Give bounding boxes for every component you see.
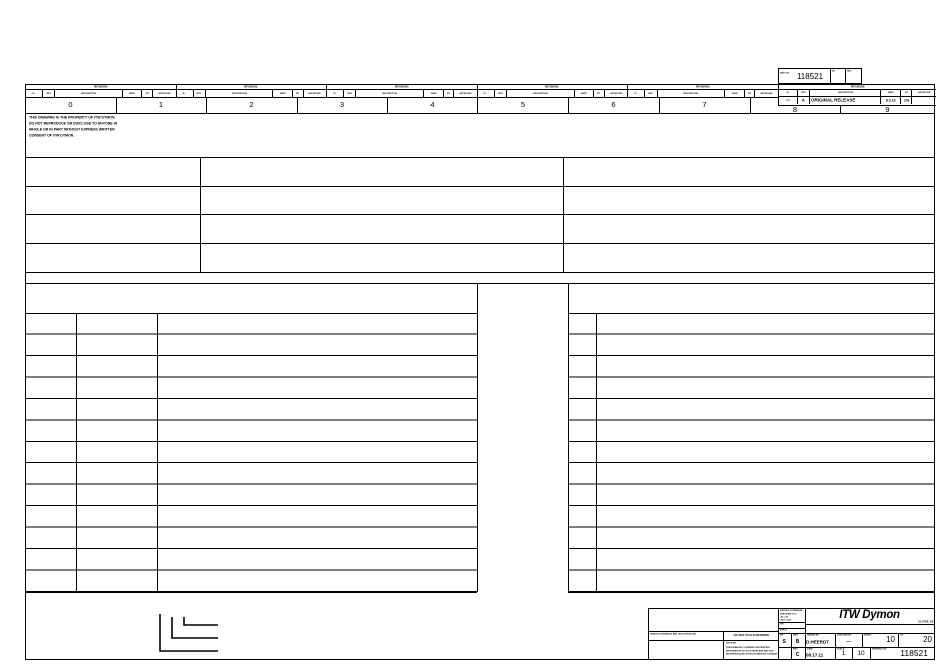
do-not-scale-note: DO NOT SCALE DRAWING — [724, 631, 778, 640]
line — [648, 608, 649, 660]
checked-by-value: — — [835, 635, 862, 646]
revision-table-header: ZL. REV DESCRIPTION DATE BY APPROVED — [25, 90, 176, 98]
zone-number: 1 — [151, 100, 171, 109]
cell-s-value: S — [778, 635, 791, 647]
date-value: 08.17.11 — [806, 650, 835, 659]
col-date: DATE — [430, 92, 436, 94]
scale-value-b: 10 — [852, 647, 870, 659]
col-date: DATE — [888, 91, 894, 93]
revision-table-header: ZL. REV DESCRIPTION DATE BY APPROVED — [477, 90, 628, 98]
sheet-value: 10 — [862, 633, 897, 646]
ref-note: REF ASM — [726, 642, 736, 644]
line — [568, 97, 569, 113]
col-by: BY — [146, 92, 149, 94]
col-by: BY — [597, 92, 600, 94]
line — [25, 186, 935, 187]
revision-table: REVISIONS ZL. REV DESCRIPTION DATE BY AP… — [326, 84, 477, 97]
revision-table-active: REVISIONS ZL. REV DESCRIPTION DATE BY AP… — [778, 84, 936, 106]
revision-table-header: ZL. REV DESCRIPTION DATE BY APPROVED — [627, 90, 778, 98]
col-by: BY — [296, 92, 299, 94]
entry-by: DS — [904, 99, 909, 103]
line — [477, 97, 478, 113]
line — [25, 592, 477, 593]
revision-table-header: ZL. REV DESCRIPTION DATE BY APPROVED — [779, 90, 936, 97]
drawing-sheet: DWG NO. 118521 SH REV REVISIONS ZL. REV … — [0, 0, 950, 667]
line — [750, 97, 751, 113]
line — [25, 243, 935, 244]
entry-rev: A — [802, 98, 805, 103]
revisions-caption: REVISIONS — [545, 85, 559, 88]
col-by: BY — [748, 92, 751, 94]
col-description: DESCRIPTION — [683, 92, 698, 94]
revisions-caption: REVISIONS — [696, 85, 710, 88]
col-approved: APPROVED — [918, 91, 930, 93]
zone-number: 6 — [604, 100, 624, 109]
line — [25, 272, 935, 273]
fine-print-line: BE REPRODUCED WITHOUT WRITTEN CONSENT — [726, 652, 778, 655]
col-description: DESCRIPTION — [382, 92, 397, 94]
col-approved: APPROVED — [610, 92, 622, 94]
revision-table-header: ZL. REV DESCRIPTION DATE BY APPROVED — [326, 90, 477, 98]
col-zone: ZL. — [786, 91, 789, 93]
sheet-mini-label: SH — [832, 70, 835, 72]
line — [206, 97, 207, 113]
revisions-caption: REVISIONS — [395, 85, 409, 88]
company-address: OLATHE, KS — [805, 618, 933, 624]
col-zone: ZL. — [634, 92, 637, 94]
serial-label: S/N — [780, 623, 784, 625]
zone-number: 0 — [61, 100, 81, 109]
col-approved: APPROVED — [158, 92, 170, 94]
col-rev: REV — [197, 92, 201, 94]
zone-number: 3 — [332, 100, 352, 109]
col-rev: REV — [46, 92, 50, 94]
line — [830, 68, 831, 84]
revisions-caption: REVISIONS — [244, 85, 258, 88]
entry-description: ORIGINAL RELEASE — [811, 98, 855, 103]
line — [659, 97, 660, 113]
line — [25, 214, 935, 215]
col-description: DESCRIPTION — [838, 91, 853, 93]
right-table-rows — [568, 313, 935, 592]
line — [840, 105, 841, 113]
line — [25, 283, 935, 284]
col-date: DATE — [581, 92, 587, 94]
col-zone: ZL. — [484, 92, 487, 94]
col-approved: APPROVED — [761, 92, 773, 94]
col-by: BY — [905, 91, 908, 93]
dwg-number-label: DWG NO. — [780, 72, 790, 74]
proprietary-note: THIS DRAWING IS THE PROPERTY OF ITW DYMO… — [29, 115, 205, 163]
line — [157, 313, 158, 592]
line — [297, 97, 298, 113]
cell-b-value: B — [791, 635, 805, 647]
col-approved: APPROVED — [309, 92, 321, 94]
col-date: DATE — [280, 92, 286, 94]
col-zone: ZL. — [32, 92, 35, 94]
note-line: CONSENT OF ITW DYMON. — [29, 133, 117, 139]
col-by: BY — [447, 92, 450, 94]
zone-number: 7 — [695, 100, 715, 109]
line — [648, 640, 778, 641]
revision-strip: REVISIONS ZL. REV DESCRIPTION DATE BY AP… — [25, 84, 778, 98]
col-rev: REV — [649, 92, 653, 94]
revisions-caption: REVISIONS — [851, 85, 865, 88]
zone-number: 8 — [785, 105, 805, 114]
zone-number: 2 — [242, 100, 262, 109]
line — [477, 283, 478, 592]
line — [116, 97, 117, 113]
line — [25, 157, 935, 158]
rev-mini-label: REV — [847, 70, 851, 72]
col-description: DESCRIPTION — [533, 92, 548, 94]
revision-table: REVISIONS ZL. REV DESCRIPTION DATE BY AP… — [176, 84, 327, 97]
scale-value-a: 1 — [835, 647, 852, 659]
line — [76, 313, 77, 592]
col-zone: ZL. — [333, 92, 336, 94]
line — [326, 84, 327, 97]
tolerance-line: .XXX ±.005 — [780, 619, 803, 622]
col-rev: REV — [801, 91, 805, 93]
revision-table: REVISIONS ZL. REV DESCRIPTION DATE BY AP… — [477, 84, 628, 97]
zone-number: 5 — [513, 100, 533, 109]
corner-fold-marks — [150, 610, 225, 658]
zone-number: 4 — [423, 100, 443, 109]
cell-c-value: C — [791, 649, 805, 660]
of-value: 20 — [898, 633, 934, 646]
col-approved: APPROVED — [459, 92, 471, 94]
col-rev: REV — [498, 92, 502, 94]
uncontrolled-note: PRINTED DRAWINGS ARE UNCONTROLLED — [650, 633, 696, 635]
drawn-by-value: D.HEERDT — [806, 637, 835, 646]
entry-zone: **** — [786, 98, 791, 102]
revisions-caption: REVISIONS — [93, 85, 107, 88]
line — [568, 592, 935, 593]
revision-table-header: ZL. REV DESCRIPTION DATE BY APPROVED — [176, 90, 327, 98]
line — [805, 624, 935, 625]
line — [596, 313, 597, 592]
line — [845, 68, 846, 84]
revision-table: REVISIONS ZL. REV DESCRIPTION DATE BY AP… — [627, 84, 778, 97]
line — [627, 84, 628, 97]
entry-date: 8.3.13 — [886, 99, 896, 103]
col-zone: ZL. — [182, 92, 185, 94]
revision-table: REVISIONS ZL. REV DESCRIPTION DATE BY AP… — [25, 84, 176, 97]
col-description: DESCRIPTION — [81, 92, 96, 94]
col-description: DESCRIPTION — [232, 92, 247, 94]
line — [387, 97, 388, 113]
approved-label: APP'D — [780, 629, 787, 631]
revision-entry-row: **** A ORIGINAL RELEASE 8.3.13 DS — [779, 97, 936, 105]
line — [477, 84, 478, 97]
line — [176, 84, 177, 97]
left-table-rows — [25, 313, 477, 592]
col-date: DATE — [732, 92, 738, 94]
col-date: DATE — [129, 92, 135, 94]
drawing-no-value: 118521 — [870, 647, 934, 659]
zone-number: 9 — [878, 105, 898, 114]
col-rev: REV — [348, 92, 352, 94]
dwg-number-value: 118521 — [790, 68, 830, 84]
drawn-by-label: DRAWN BY — [807, 634, 819, 636]
